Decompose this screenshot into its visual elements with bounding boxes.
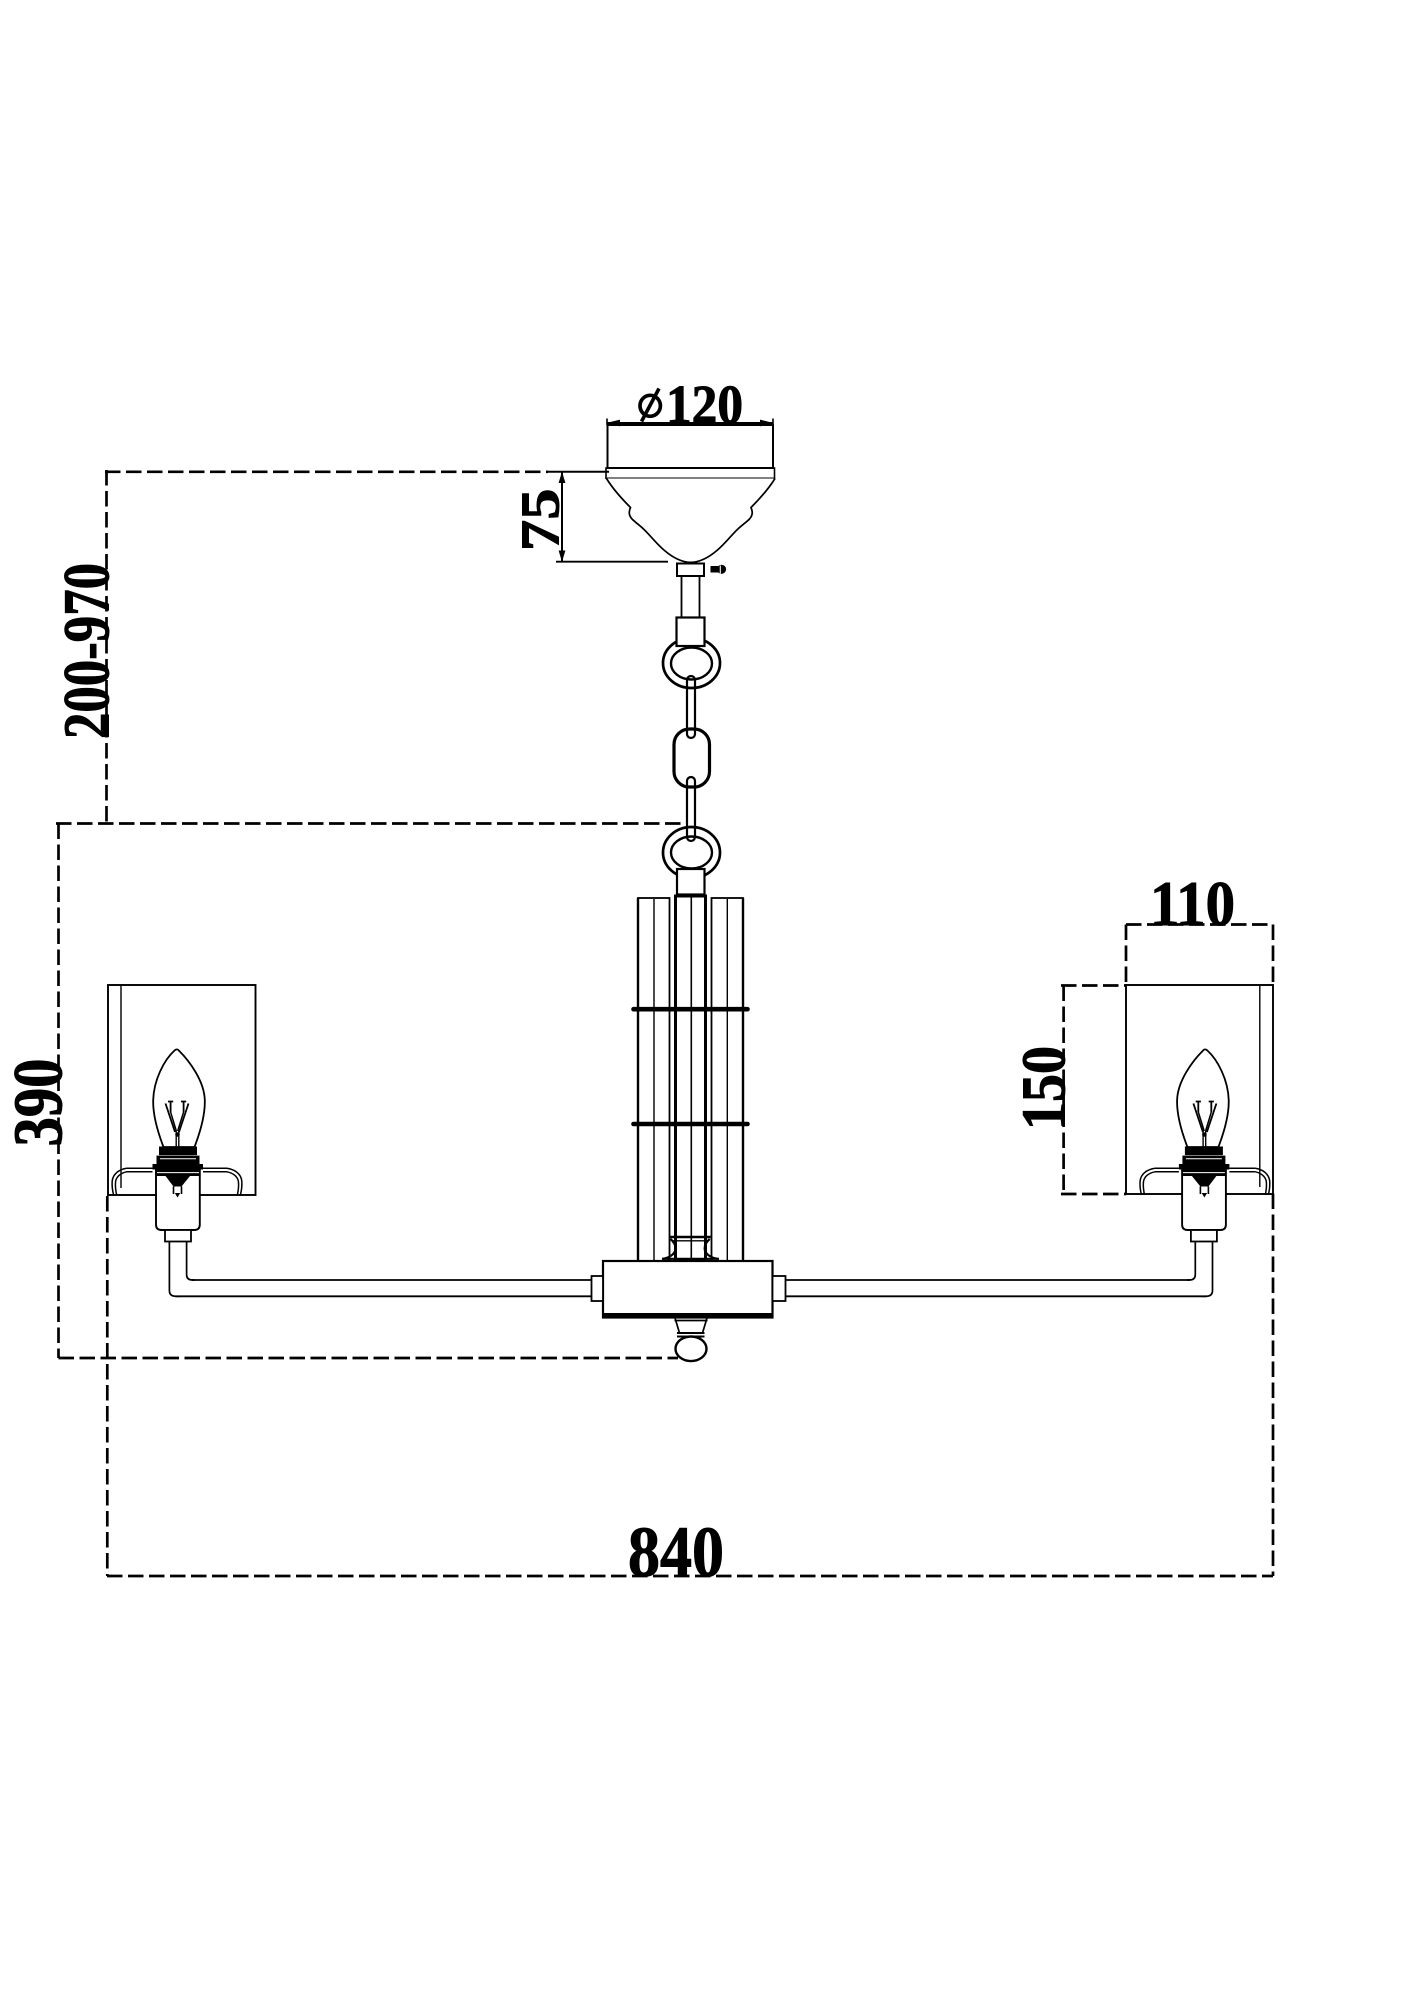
svg-text:840: 840 bbox=[628, 1512, 724, 1592]
svg-text:200-970: 200-970 bbox=[51, 563, 124, 739]
svg-text:75: 75 bbox=[510, 489, 571, 552]
svg-text:110: 110 bbox=[1150, 868, 1235, 939]
svg-text:390: 390 bbox=[1, 1059, 78, 1147]
svg-text:150: 150 bbox=[1011, 1046, 1079, 1130]
